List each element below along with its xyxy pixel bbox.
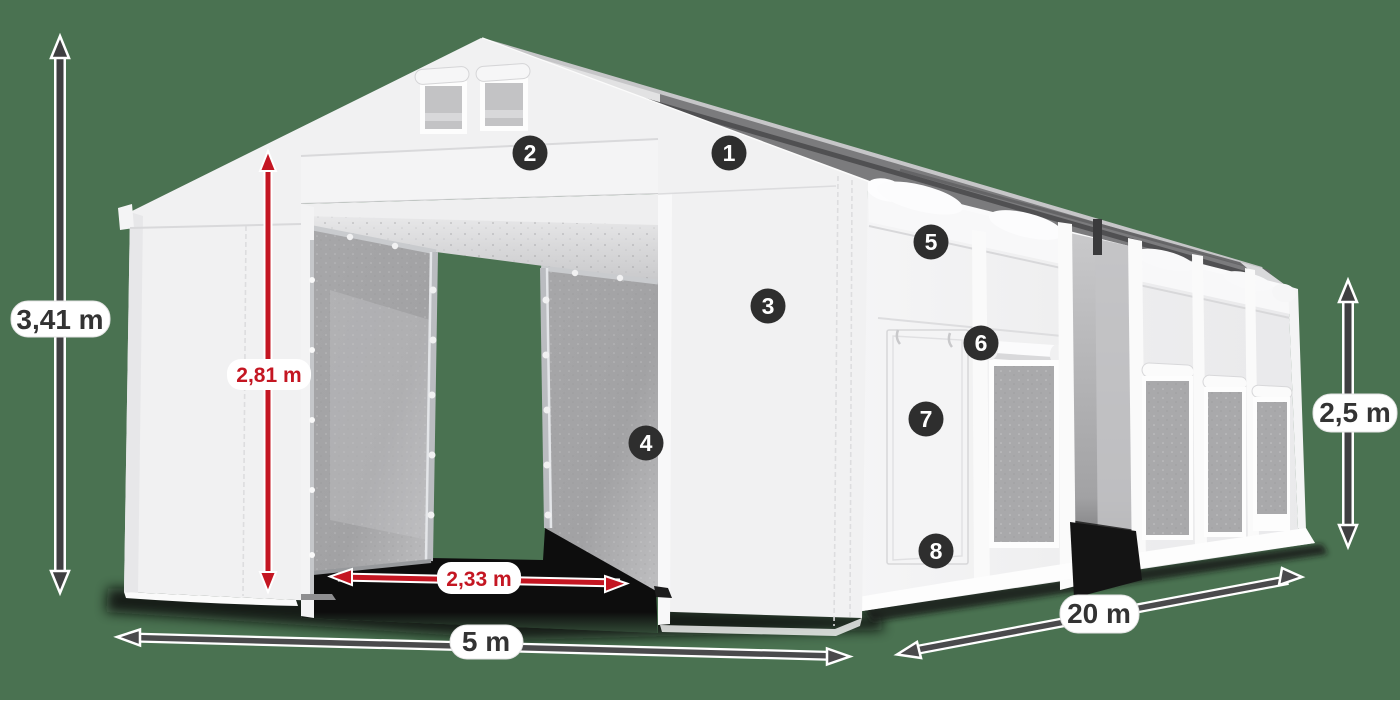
svg-text:4: 4 [640,430,653,456]
svg-text:2,81 m: 2,81 m [236,364,301,387]
svg-text:1: 1 [723,140,736,166]
svg-text:6: 6 [975,330,988,356]
svg-text:8: 8 [930,538,943,564]
svg-text:3: 3 [762,293,775,319]
svg-text:2,5 m: 2,5 m [1319,397,1391,428]
svg-text:7: 7 [920,406,933,432]
svg-text:3,41 m: 3,41 m [16,304,103,335]
svg-text:5: 5 [925,229,938,255]
svg-text:5 m: 5 m [462,626,510,657]
svg-text:2,33 m: 2,33 m [446,568,511,591]
svg-text:2: 2 [524,140,537,166]
svg-text:20 m: 20 m [1067,598,1131,629]
